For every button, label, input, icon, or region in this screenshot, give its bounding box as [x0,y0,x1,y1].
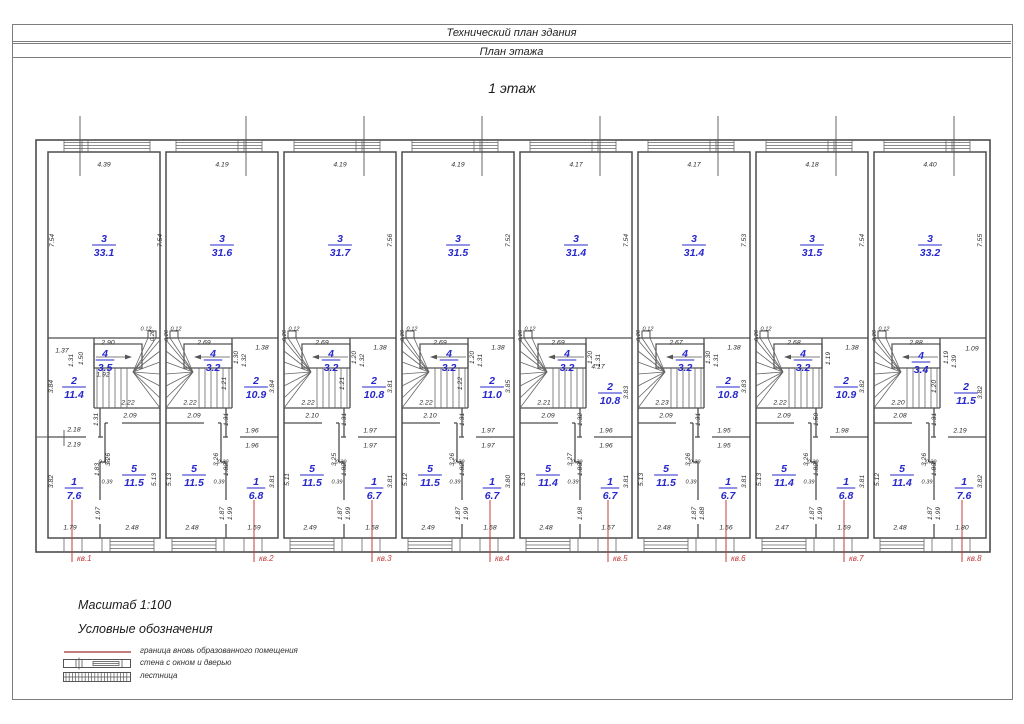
room-number: 3 [691,233,697,245]
room-area: 31.4 [566,247,587,259]
dim-label: 3.83 [741,380,748,393]
room-number: 2 [252,375,259,387]
dim-label: 0.12 [525,327,537,333]
dim-label: 1.59 [247,525,260,532]
dim-label: 2.22 [772,400,786,407]
room-area: 11.5 [420,477,440,489]
dim-label: 0.39 [922,480,933,486]
dim-label: 0.26 [872,329,878,341]
dim-label: 3.81 [269,475,276,488]
room-number: 3 [101,233,107,245]
dim-label: 0.39 [686,480,697,486]
dim-label: 0.26 [518,329,524,341]
unit-2: кв.2331.643.2210.9511.516.84.197.540.120… [157,116,278,563]
document-page: Технический план здания План этажа 1 эта… [0,0,1024,724]
room-number: 1 [371,476,377,488]
room-area: 33.1 [94,247,115,259]
room-number: 3 [573,233,579,245]
legend-heading: Условные обозначения [78,622,213,636]
unit-label: кв.6 [731,554,746,563]
room-number: 5 [781,463,787,475]
dim-label: 1.50 [78,352,85,365]
room-area: 11.5 [124,477,144,489]
dim-label: 7.52 [505,234,512,247]
dim-label: 5.13 [151,473,158,486]
dim-label: 2.90 [100,340,114,347]
room-area: 31.5 [802,247,823,259]
dim-label: 2.22 [300,400,314,407]
dim-label: 1.32 [359,354,366,367]
legend-label: лестница [140,671,178,680]
stair-direction-arrow [194,355,201,360]
dim-label: 1.20 [587,351,594,364]
dim-label: 7.53 [741,234,748,247]
unit-label: кв.2 [259,554,274,563]
dim-label: 1.97 [95,507,102,520]
dim-label: 0.26 [400,329,406,341]
dim-label: 7.54 [49,234,56,247]
room-area: 11.4 [538,477,558,489]
room-number: 3 [337,233,343,245]
dim-label: 1.31 [68,354,75,367]
dim-label: 1.58 [483,525,496,532]
room-number: 4 [101,348,108,360]
dim-label: 1.32 [241,354,248,367]
dim-label: 2.19 [952,428,966,435]
room-area: 3.2 [324,362,339,374]
legend-label: граница вновь образованного помещения [140,646,298,655]
floor-plan-drawing: кв.1333.143.5211.4511.517.64.397.540.120… [0,0,1024,724]
dim-label: 4.17 [687,162,700,169]
room-area: 11.4 [774,477,794,489]
dim-label: 1.79 [63,525,76,532]
dim-label: 1.39 [951,355,958,368]
dim-label: 1.22 [457,377,464,390]
dim-label: 4.19 [451,162,464,169]
dim-label: 7.54 [157,234,164,247]
dim-label: 1.20 [469,351,476,364]
stair-direction-arrow [125,355,132,360]
unit-label: кв.1 [77,554,92,563]
dim-label: 2.47 [774,525,788,532]
stair-direction-arrow [784,355,791,360]
dim-label: 0.12 [289,327,301,333]
room-number: 4 [799,348,806,360]
room-area: 3.2 [206,362,221,374]
unit-label: кв.5 [613,554,628,563]
room-area: 6.7 [603,490,619,502]
unit-5: кв.5331.443.2210.8511.416.74.177.540.120… [518,116,632,563]
dim-label: 2.49 [420,525,434,532]
dim-label: 3.85 [505,380,512,393]
dim-label: 2.18 [66,427,80,434]
dim-label: 5.13 [638,473,645,486]
unit-label: кв.7 [849,554,864,563]
unit-label: кв.8 [967,554,982,563]
unit-label: кв.4 [495,554,510,563]
dim-label: 1.31 [931,413,938,426]
unit-8: кв.8333.243.4211.5511.417.64.407.550.120… [872,116,986,563]
room-number: 5 [899,463,905,475]
room-number: 5 [427,463,433,475]
unit-3: кв.3331.743.2210.8511.516.74.197.560.120… [282,116,396,563]
scale-text: Масштаб 1:100 [78,598,171,612]
room-area: 10.9 [836,389,857,401]
room-area: 6.7 [721,490,737,502]
dim-label: 1.56 [719,525,732,532]
room-number: 2 [488,375,495,387]
dim-label: 0.39 [332,480,343,486]
dim-label: 1.99 [817,507,824,520]
dim-label: 7.55 [977,234,984,247]
dim-label: 5.11 [284,473,291,486]
dim-label: 3.84 [48,380,55,393]
room-area: 31.7 [330,247,352,259]
dim-label: 1.30 [705,351,712,364]
room-area: 11.5 [302,477,322,489]
dim-label: 2.10 [422,413,436,420]
dim-label: 1.96 [599,443,612,450]
dim-label: 1.99 [463,507,470,520]
dim-label: 1.38 [255,345,268,352]
dim-label: 5.12 [402,473,409,486]
dim-label: 2.09 [658,413,672,420]
dim-label: 1.21 [221,377,228,390]
room-number: 3 [809,233,815,245]
room-number: 5 [663,463,669,475]
dim-label: 2.48 [124,525,138,532]
dim-label: 3.84 [269,380,276,393]
dim-label: 0.39 [572,460,583,466]
dim-label: 2.19 [66,442,80,449]
room-number: 1 [489,476,495,488]
dim-label: 1.96 [599,428,612,435]
room-area: 6.7 [485,490,501,502]
dim-label: 1.92 [96,372,109,379]
room-number: 5 [131,463,137,475]
unit-label: кв.3 [377,554,392,563]
room-area: 3.2 [442,362,457,374]
room-area: 6.8 [249,490,264,502]
dim-label: 7.56 [387,234,394,247]
dim-label: 1.31 [223,413,230,426]
dim-label: 1.80 [955,525,968,532]
room-area: 6.8 [839,490,854,502]
room-area: 6.7 [367,490,383,502]
dim-label: 2.88 [908,340,922,347]
dim-label: 2.69 [432,340,446,347]
dim-label: 4.40 [923,162,936,169]
dim-label: 1.38 [845,345,858,352]
dim-label: 2.21 [536,400,550,407]
dim-label: 1.96 [245,428,258,435]
unit-4: кв.4331.543.2211.0511.516.74.197.520.120… [400,116,514,563]
dim-label: 2.20 [890,400,904,407]
dim-label: 0.12 [643,327,655,333]
dim-label: 1.37 [55,348,68,355]
dim-label: 2.09 [776,413,790,420]
dim-label: 1.31 [477,354,484,367]
dim-label: 1.87 [927,507,934,520]
room-area: 3.4 [914,364,929,376]
unit-7: кв.7331.543.2210.9511.416.84.187.540.120… [754,116,868,563]
dim-label: 0.12 [407,327,419,333]
dim-label: 1.38 [373,345,386,352]
room-number: 2 [842,375,849,387]
stair-direction-arrow [312,355,319,360]
dim-label: 0.39 [336,460,347,466]
dim-label: 1.96 [245,443,258,450]
dim-label: 4.39 [97,162,110,169]
dim-label: 1.20 [351,351,358,364]
stair-direction-arrow [548,355,555,360]
room-area: 11.5 [184,477,204,489]
dim-label: 2.09 [540,413,554,420]
dim-label: 0.39 [218,460,229,466]
dim-label: 2.49 [302,525,316,532]
dim-label: 4.17 [591,364,604,371]
room-area: 3.2 [796,362,811,374]
dim-label: 1.31 [93,413,100,426]
room-number: 1 [253,476,259,488]
dim-label: 2.48 [892,525,906,532]
dim-label: 4.19 [333,162,346,169]
dim-label: 5.13 [166,473,173,486]
dim-label: 1.19 [825,352,832,365]
room-area: 11.5 [656,477,676,489]
dim-label: 1.99 [935,507,942,520]
room-number: 4 [327,348,334,360]
room-number: 4 [563,348,570,360]
dim-label: 0.26 [150,329,156,341]
dim-label: 1.21 [339,377,346,390]
dim-label: 1.31 [341,413,348,426]
dim-label: 1.87 [691,507,698,520]
room-area: 10.8 [364,389,385,401]
dim-label: 2.09 [186,413,200,420]
dim-label: 3.81 [623,475,630,488]
dim-label: 1.87 [455,507,462,520]
dim-label: 0.12 [879,327,891,333]
room-number: 4 [681,348,688,360]
room-area: 11.4 [892,477,912,489]
dim-label: 4.17 [569,162,582,169]
dim-label: 1.95 [717,443,730,450]
room-area: 3.2 [678,362,693,374]
dim-label: 1.31 [695,413,702,426]
dim-label: 4.19 [215,162,228,169]
room-area: 11.0 [482,389,502,401]
dim-label: 0.39 [102,480,113,486]
unit-1: кв.1333.143.5211.4511.517.64.397.540.120… [37,116,160,563]
dim-label: 3.82 [977,386,984,399]
dim-label: 1.98 [835,428,848,435]
room-area: 10.9 [246,389,267,401]
room-area: 7.6 [957,490,972,502]
room-area: 10.8 [718,389,739,401]
dim-label: 1.97 [481,443,494,450]
dim-label: 0.26 [636,329,642,341]
room-area: 3.2 [560,362,575,374]
dim-label: 0.39 [454,460,465,466]
stair-direction-arrow [666,355,673,360]
dim-label: 3.81 [859,475,866,488]
dim-label: 1.31 [459,413,466,426]
dim-label: 0.39 [450,480,461,486]
dim-label: 3.83 [623,386,630,399]
dim-label: 1.97 [363,428,376,435]
room-number: 4 [209,348,216,360]
room-area: 33.2 [920,247,941,259]
dim-label: 3.82 [977,475,984,488]
room-number: 1 [725,476,731,488]
dim-label: 0.39 [804,480,815,486]
room-area: 10.8 [600,395,621,407]
dim-label: 1.87 [337,507,344,520]
dim-label: 1.32 [577,413,584,426]
room-area: 11.5 [956,395,976,407]
dim-label: 5.13 [520,473,527,486]
room-area: 7.6 [67,490,82,502]
dim-label: 2.10 [304,413,318,420]
stair-direction-arrow [902,355,909,360]
dim-label: 2.67 [668,340,682,347]
dim-label: 0.26 [164,329,170,341]
room-number: 3 [219,233,225,245]
dim-label: 2.68 [786,340,800,347]
dim-label: 1.50 [813,413,820,426]
dim-label: 1.57 [601,525,614,532]
dim-label: 1.09 [965,346,978,353]
dim-label: 3.81 [387,475,394,488]
dim-label: 1.99 [345,507,352,520]
dim-label: 2.09 [122,413,136,420]
dim-label: 3.80 [505,475,512,488]
dim-label: 1.99 [227,507,234,520]
dim-label: 0.39 [690,460,701,466]
dim-label: 1.31 [713,354,720,367]
room-number: 3 [455,233,461,245]
dim-label: 3.81 [741,475,748,488]
dim-label: 0.39 [568,480,579,486]
dim-label: 2.23 [654,400,668,407]
room-number: 5 [309,463,315,475]
room-number: 2 [724,375,731,387]
dim-label: 0.26 [282,329,288,341]
dim-label: 0.39 [808,460,819,466]
dim-label: 1.30 [233,351,240,364]
room-number: 1 [961,476,967,488]
room-number: 2 [370,375,377,387]
dim-label: 0.45 [99,460,111,466]
room-area: 31.4 [684,247,705,259]
dim-label: 1.88 [699,507,706,520]
room-number: 5 [191,463,197,475]
dim-label: 0.12 [761,327,773,333]
dim-label: 2.22 [418,400,432,407]
dim-label: 1.59 [837,525,850,532]
dim-label: 2.69 [196,340,210,347]
dim-label: 3.82 [48,475,55,488]
dim-label: 2.48 [184,525,198,532]
dim-label: 1.95 [717,428,730,435]
dim-label: 1.20 [931,380,938,393]
room-number: 2 [606,381,613,393]
staircase-icon [63,670,133,683]
dim-label: 0.26 [754,329,760,341]
dim-label: 1.97 [481,428,494,435]
dim-label: 1.87 [809,507,816,520]
room-number: 1 [843,476,849,488]
room-area: 31.5 [448,247,469,259]
dim-label: 3.81 [387,380,394,393]
legend-label: стена с окном и дверью [140,658,231,667]
dim-label: 1.38 [491,345,504,352]
dim-label: 2.69 [314,340,328,347]
dim-label: 1.58 [365,525,378,532]
wall-window-door-icon [63,657,133,670]
room-number: 3 [927,233,933,245]
room-number: 1 [71,476,77,488]
room-number: 4 [445,348,452,360]
dim-label: 1.98 [577,507,584,520]
room-number: 2 [70,375,77,387]
dim-label: 1.87 [219,507,226,520]
dim-label: 2.22 [182,400,196,407]
dim-label: 2.48 [656,525,670,532]
dim-label: 1.19 [943,351,950,364]
room-number: 5 [545,463,551,475]
dim-label: 3.82 [859,380,866,393]
dim-label: 4.18 [805,162,818,169]
dim-label: 7.54 [859,234,866,247]
room-number: 4 [917,350,924,362]
dim-label: 2.08 [892,413,906,420]
room-number: 1 [607,476,613,488]
dim-label: 7.54 [623,234,630,247]
room-area: 11.4 [64,389,84,401]
dim-label: 2.69 [550,340,564,347]
dim-label: 2.48 [538,525,552,532]
dim-label: 2.22 [120,400,134,407]
dim-label: 0.39 [926,460,937,466]
dim-label: 0.39 [214,480,225,486]
room-number: 2 [962,381,969,393]
dim-label: 5.12 [874,473,881,486]
dim-label: 1.97 [363,443,376,450]
dim-label: 0.12 [171,327,183,333]
dim-label: 1.38 [727,345,740,352]
unit-6: кв.6331.443.2210.8511.516.74.177.530.120… [636,116,750,563]
room-area: 31.6 [212,247,233,259]
dim-label: 5.13 [756,473,763,486]
stair-direction-arrow [430,355,437,360]
